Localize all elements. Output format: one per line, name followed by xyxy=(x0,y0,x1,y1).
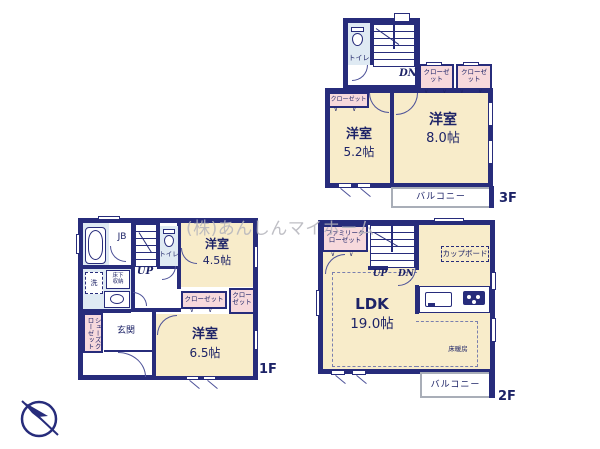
window xyxy=(331,370,345,375)
stove-icon xyxy=(463,291,485,305)
window xyxy=(463,62,479,66)
toilet-icon xyxy=(163,229,175,234)
window xyxy=(488,102,493,126)
window xyxy=(426,62,442,66)
window xyxy=(491,272,496,290)
window-tick xyxy=(189,380,200,389)
stair-divider xyxy=(391,224,393,252)
toilet-label: トイレ xyxy=(344,54,374,62)
closet-3f-b: クローゼット xyxy=(456,64,492,90)
folding-door-mark: ∨ ∨ xyxy=(331,107,365,113)
wall xyxy=(390,93,394,183)
wall xyxy=(415,224,419,270)
window xyxy=(488,140,493,164)
window-tick xyxy=(360,188,371,197)
entrance-step xyxy=(104,350,152,352)
room-65-size: 6.5帖 xyxy=(160,347,250,361)
window xyxy=(254,330,258,350)
room-65-name: 洋室 xyxy=(160,328,250,343)
window xyxy=(434,218,464,222)
window xyxy=(76,234,80,254)
room-45-name: 洋室 xyxy=(181,238,253,252)
wall xyxy=(489,372,495,398)
cupboard-box: カップボード xyxy=(441,246,489,262)
closet-label: クローゼット xyxy=(421,69,452,84)
room-45-size: 4.5帖 xyxy=(181,255,253,268)
window xyxy=(491,318,496,342)
family-closet-label: ファミリークローゼット xyxy=(324,230,366,245)
toilet-label: トイレ xyxy=(154,251,184,258)
floor-label-3f: 3F xyxy=(499,191,525,206)
floor-label-1f: 1F xyxy=(259,362,285,377)
folding-door-mark: ∨ ∨ xyxy=(459,89,489,95)
window xyxy=(352,370,366,375)
entrance-label: 玄関 xyxy=(104,326,148,336)
compass-icon xyxy=(12,394,64,442)
room-80-size: 8.0帖 xyxy=(400,132,486,147)
closet-label: クローゼット xyxy=(458,69,490,84)
shoes-closet-1f: シューズクローゼット xyxy=(83,313,103,353)
ldk-size: 19.0帖 xyxy=(328,317,416,333)
stairs-up-label-1f: UP xyxy=(130,266,160,277)
room-52-name: 洋室 xyxy=(328,128,390,143)
washbasin-icon xyxy=(110,294,124,304)
underfloor-storage-box: 床下収納 xyxy=(106,270,130,289)
underfloor-label: 床下収納 xyxy=(112,273,125,286)
wall xyxy=(489,186,494,208)
toilet-icon xyxy=(351,27,364,32)
window xyxy=(254,246,258,268)
floor-heating-zone xyxy=(416,321,478,367)
closet-label: クローゼット xyxy=(231,292,253,307)
window xyxy=(186,376,199,380)
room-80-name: 洋室 xyxy=(400,112,486,128)
closet-3f-a: クローゼット xyxy=(419,64,454,90)
faucet-icon xyxy=(428,303,435,306)
closet-label: クローゼット xyxy=(330,94,367,105)
washing-machine-icon: 洗 xyxy=(85,272,103,294)
folding-door-mark: ∨ ∨ xyxy=(327,252,363,258)
closet-label: クローゼット xyxy=(183,293,225,306)
shoes-closet-label: シューズクローゼット xyxy=(86,315,100,351)
stairs-up-label-2f: UP xyxy=(368,269,392,279)
window xyxy=(203,376,216,380)
window xyxy=(316,290,320,316)
room-52-size: 5.2帖 xyxy=(328,146,390,160)
balcony-3f: バルコニー xyxy=(391,187,491,208)
window xyxy=(98,216,120,220)
wash-label: 洗 xyxy=(86,273,102,293)
cupboard-label: カップボード xyxy=(442,247,488,260)
folding-door-mark: ∨ ∨ xyxy=(424,89,452,95)
stair-divider xyxy=(393,23,395,49)
balcony-label: バルコニー xyxy=(393,189,489,206)
floor-heating-label: 床暖房 xyxy=(438,346,478,353)
vent-window-3f xyxy=(394,13,410,22)
closet-1f-b: クローゼット xyxy=(229,288,255,314)
window-tick xyxy=(340,188,351,197)
stairs-dn-label-3f: DN xyxy=(396,68,420,79)
window-tick xyxy=(207,380,218,389)
folding-door-mark: ∨ ∨ xyxy=(188,308,220,314)
stairs-dn-label-2f: DN xyxy=(394,269,418,279)
family-closet-2f: ファミリークローゼット xyxy=(322,225,368,252)
wall xyxy=(131,308,181,312)
window-tick xyxy=(356,375,367,384)
floor-label-2f: 2F xyxy=(498,389,524,404)
balcony-2f: バルコニー xyxy=(420,372,491,398)
jb-label: JB xyxy=(109,232,135,242)
window xyxy=(338,183,352,188)
bathtub-icon xyxy=(88,230,103,260)
window-tick xyxy=(335,375,346,384)
window xyxy=(357,183,371,188)
balcony-label: バルコニー xyxy=(422,374,489,396)
floorplan-page: トイレ DN クローゼット クローゼット クローゼット ∨ ∨ ∨ ∨ ∨ ∨ … xyxy=(0,0,600,449)
ldk-name: LDK xyxy=(328,296,416,313)
